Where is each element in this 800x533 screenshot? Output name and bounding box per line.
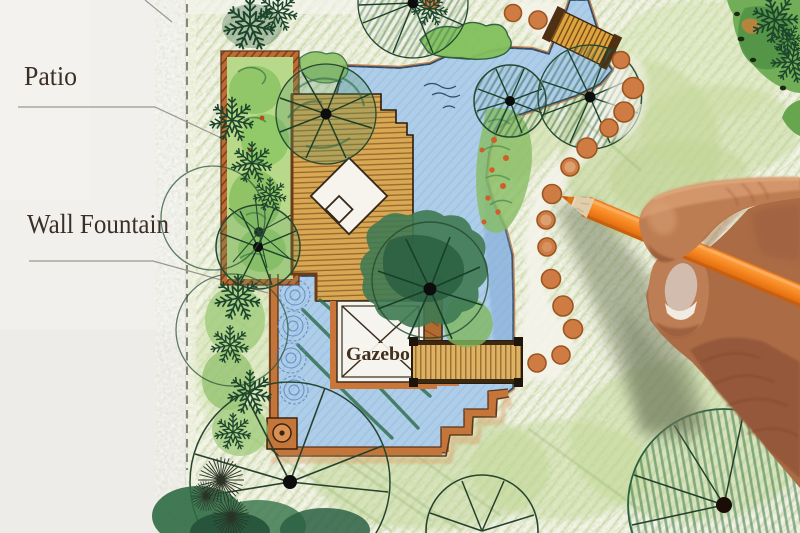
- svg-text:Wall Fountain: Wall Fountain: [27, 209, 169, 239]
- svg-text:Patio: Patio: [24, 61, 77, 91]
- svg-text:Gazebo: Gazebo: [346, 344, 410, 365]
